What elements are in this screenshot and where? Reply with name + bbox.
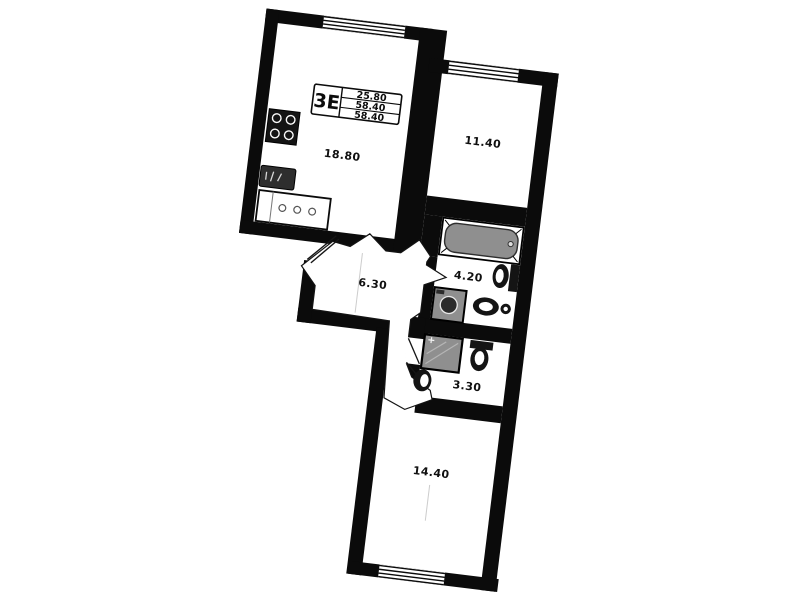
room-label-bathroom: 4.20 — [453, 268, 483, 284]
unit-stamp: 3E 25.80 58.40 58.40 — [311, 84, 402, 126]
floor-plan: 18.80 11.40 6.30 4.20 3.30 14.40 3E 25.8… — [199, 9, 564, 592]
gas-box-icon — [259, 165, 296, 190]
room-label-bedroom-lower: 14.40 — [412, 464, 450, 481]
sink-icon — [472, 296, 512, 319]
room-label-wc: 3.30 — [452, 378, 482, 394]
toilet-icon — [491, 262, 520, 292]
window-symbol — [378, 564, 445, 585]
washing-machine-icon — [431, 287, 467, 323]
floor-plan-drawing: 18.80 11.40 6.30 4.20 3.30 14.40 3E 25.8… — [0, 0, 799, 600]
window-symbol — [323, 16, 406, 39]
unit-stamp-row: 58.40 — [353, 110, 385, 125]
wall-segment — [346, 327, 391, 575]
room-label-kitchen-living: 18.80 — [323, 147, 361, 164]
room-label-bedroom-upper: 11.40 — [464, 134, 502, 151]
toilet-icon — [467, 340, 493, 373]
shower-icon — [421, 334, 463, 372]
unit-type-code: 3E — [312, 90, 341, 115]
stove-icon — [265, 109, 300, 146]
window-symbol — [448, 60, 519, 82]
window-bedroom-upper — [448, 60, 519, 82]
floor-plan-page: 18.80 11.40 6.30 4.20 3.30 14.40 3E 25.8… — [0, 0, 799, 600]
window-living — [323, 16, 406, 39]
window-bedroom-lower — [378, 564, 445, 585]
